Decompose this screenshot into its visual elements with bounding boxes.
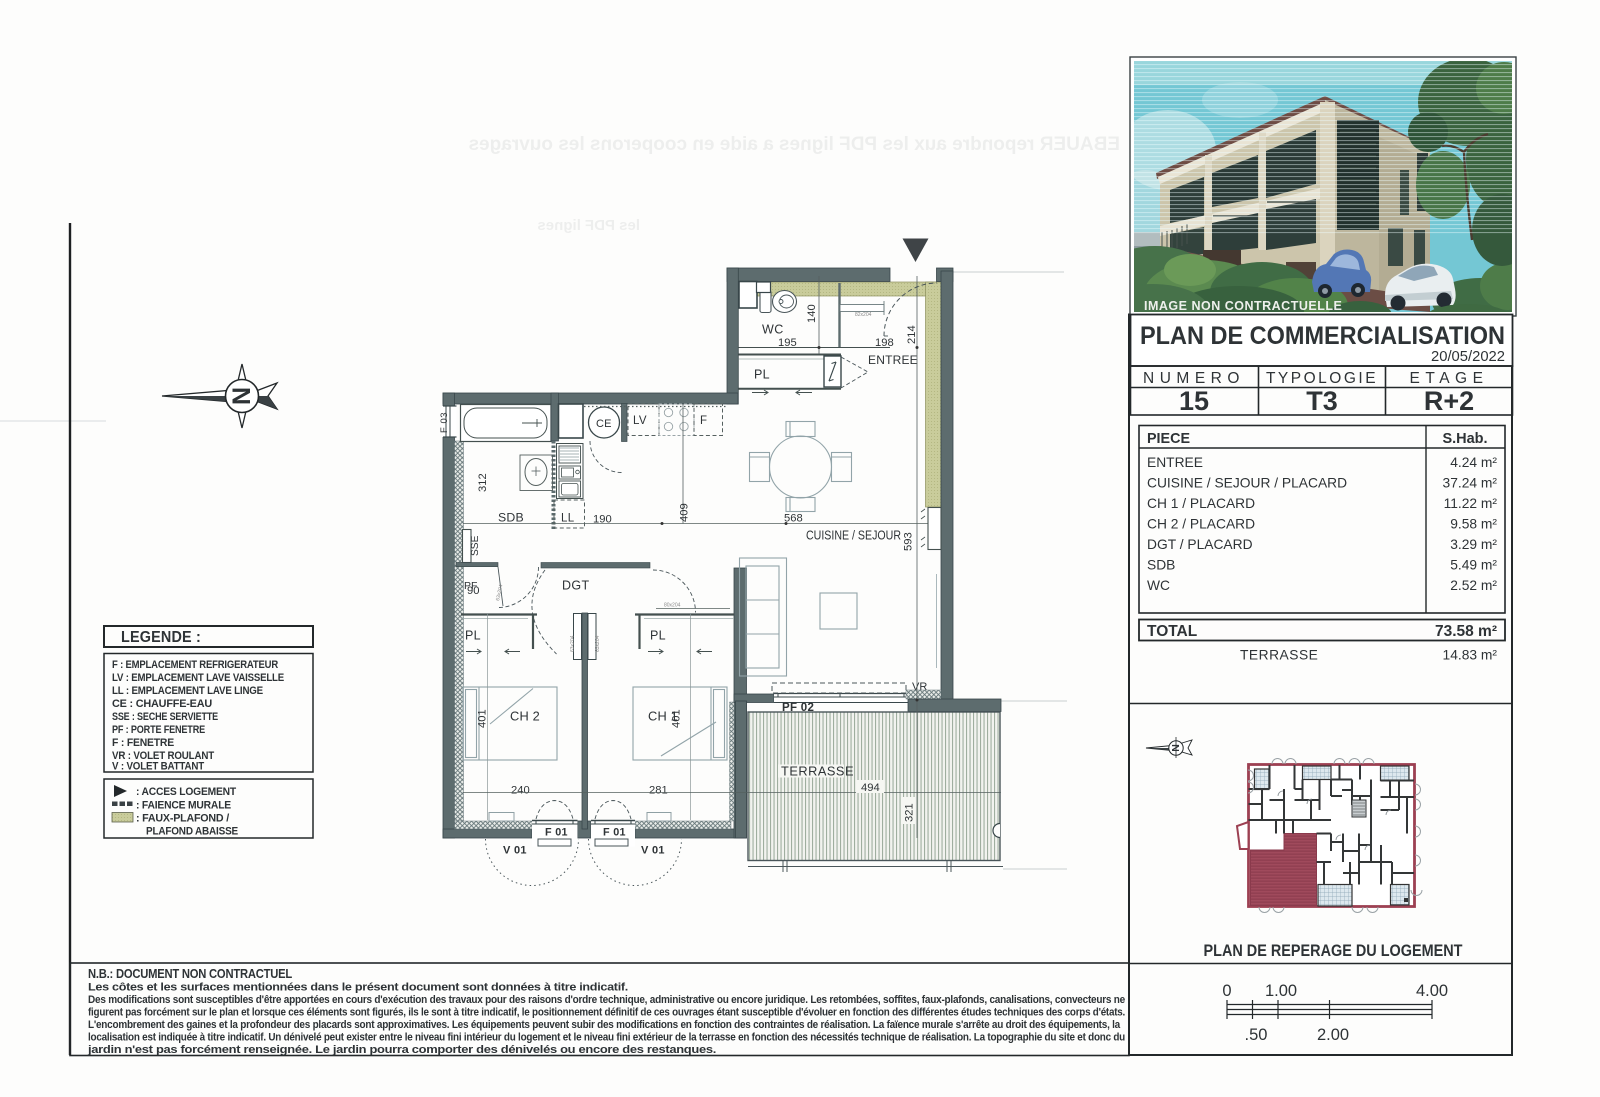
- svg-text:63x204: 63x204: [495, 584, 504, 602]
- svg-text:DGT: DGT: [562, 579, 590, 593]
- svg-text:198: 198: [875, 337, 894, 349]
- svg-text:CE : CHAUFFE-EAU: CE : CHAUFFE-EAU: [112, 698, 212, 710]
- svg-text:63x204: 63x204: [595, 635, 601, 652]
- svg-text:F 03: F 03: [439, 412, 450, 433]
- svg-text:T3: T3: [1306, 386, 1338, 416]
- svg-text:V : VOLET BATTANT: V : VOLET BATTANT: [112, 761, 205, 773]
- svg-text:11.22 m²: 11.22 m²: [1444, 496, 1498, 511]
- svg-text:20/05/2022: 20/05/2022: [1431, 349, 1505, 365]
- svg-text:IMAGE NON CONTRACTUELLE: IMAGE NON CONTRACTUELLE: [1144, 299, 1342, 313]
- svg-text:CH 2 / PLACARD: CH 2 / PLACARD: [1147, 517, 1255, 532]
- svg-text:LL : EMPLACEMENT LAVE LINGE: LL : EMPLACEMENT LAVE LINGE: [112, 685, 263, 697]
- svg-text:401: 401: [477, 709, 489, 728]
- svg-text:CH 1 / PLACARD: CH 1 / PLACARD: [1147, 496, 1255, 511]
- svg-text:5.49 m²: 5.49 m²: [1450, 558, 1497, 573]
- svg-text:jardin n'est pas forcément ren: jardin n'est pas forcément renseignée. L…: [87, 1044, 717, 1056]
- svg-text:ENTREE: ENTREE: [868, 353, 918, 367]
- svg-text:PLAFOND ABAISSE: PLAFOND ABAISSE: [146, 826, 238, 838]
- svg-text:9.58 m²: 9.58 m²: [1450, 517, 1497, 532]
- svg-text:: FAIENCE MURALE: : FAIENCE MURALE: [136, 800, 231, 812]
- svg-text:CUISINE / SEJOUR: CUISINE / SEJOUR: [806, 528, 901, 543]
- svg-text:37.24 m²: 37.24 m²: [1443, 476, 1498, 491]
- svg-text:CUISINE / SEJOUR / PLACARD: CUISINE / SEJOUR / PLACARD: [1147, 476, 1347, 491]
- svg-text:2.00: 2.00: [1317, 1026, 1349, 1044]
- svg-text:F : FENETRE: F : FENETRE: [112, 737, 174, 749]
- svg-text:SDB: SDB: [1147, 558, 1175, 573]
- svg-text:4.00: 4.00: [1416, 982, 1448, 1000]
- svg-text:TERRASSE: TERRASSE: [1240, 648, 1318, 663]
- svg-text:PL: PL: [465, 629, 481, 643]
- svg-text:4.24 m²: 4.24 m²: [1450, 455, 1497, 470]
- svg-text:LV : EMPLACEMENT LAVE VAISSELL: LV : EMPLACEMENT LAVE VAISSELLE: [112, 672, 284, 684]
- svg-text:ENTREE: ENTREE: [1147, 455, 1203, 470]
- svg-text:PLAN DE REPERAGE DU LOGEMENT: PLAN DE REPERAGE DU LOGEMENT: [1204, 942, 1463, 960]
- svg-text:312: 312: [477, 473, 489, 492]
- svg-text:214: 214: [906, 325, 918, 344]
- svg-text:F : EMPLACEMENT REFRIGERATEUR: F : EMPLACEMENT REFRIGERATEUR: [112, 659, 278, 671]
- svg-text:LEGENDE :: LEGENDE :: [121, 629, 201, 646]
- svg-text:PF: PF: [464, 580, 477, 592]
- svg-text:PIECE: PIECE: [1147, 430, 1190, 447]
- svg-text:.50: .50: [1245, 1026, 1268, 1044]
- svg-text:PF : PORTE FENETRE: PF : PORTE FENETRE: [112, 724, 205, 736]
- svg-text:568: 568: [784, 513, 803, 525]
- svg-text:N: N: [1170, 744, 1182, 752]
- svg-text:SDB: SDB: [498, 511, 524, 525]
- svg-text:: FAUX-PLAFOND /: : FAUX-PLAFOND /: [136, 813, 229, 825]
- svg-text:TYPOLOGIE: TYPOLOGIE: [1266, 370, 1378, 387]
- svg-text:les PDF lignes: les PDF lignes: [537, 217, 640, 234]
- svg-text:F 01: F 01: [603, 827, 626, 839]
- svg-text:LV: LV: [633, 415, 647, 427]
- svg-text:195: 195: [778, 337, 797, 349]
- svg-text:140: 140: [806, 304, 818, 323]
- svg-text:N: N: [228, 387, 256, 405]
- svg-text:V 01: V 01: [503, 845, 527, 857]
- svg-text:CE: CE: [596, 418, 612, 430]
- svg-text:SSE : SECHE SERVIETTE: SSE : SECHE SERVIETTE: [112, 711, 218, 723]
- svg-text:LL: LL: [561, 513, 575, 525]
- svg-text:409: 409: [679, 503, 691, 522]
- svg-text:PL: PL: [650, 629, 666, 643]
- svg-text:DGT / PLACARD: DGT / PLACARD: [1147, 537, 1253, 552]
- svg-text:73.58 m²: 73.58 m²: [1435, 623, 1497, 640]
- svg-text:WC: WC: [762, 323, 784, 337]
- svg-text:TERRASSE: TERRASSE: [781, 764, 854, 779]
- svg-text:281: 281: [649, 785, 668, 797]
- svg-text:NUMERO: NUMERO: [1143, 370, 1245, 387]
- svg-text:R+2: R+2: [1424, 386, 1474, 416]
- svg-text:15: 15: [1179, 386, 1209, 416]
- svg-text:494: 494: [861, 782, 880, 794]
- svg-text:CH 2: CH 2: [510, 709, 540, 724]
- svg-text:SSE: SSE: [470, 535, 481, 556]
- svg-text:N.B.: DOCUMENT NON CONTRACTUEL: N.B.: DOCUMENT NON CONTRACTUEL: [88, 967, 292, 981]
- svg-text:190: 190: [593, 514, 612, 526]
- svg-text:401: 401: [671, 709, 683, 728]
- svg-text:593: 593: [903, 532, 915, 551]
- svg-text:L'encombrement des gaines et l: L'encombrement des gaines et la profonde…: [88, 1019, 1120, 1031]
- svg-text:3.29 m²: 3.29 m²: [1450, 537, 1497, 552]
- svg-text:ETAGE: ETAGE: [1410, 370, 1489, 387]
- svg-text:PL: PL: [754, 368, 770, 382]
- svg-text:Des modifications sont suscept: Des modifications sont susceptibles d'êt…: [88, 994, 1125, 1006]
- svg-text:EBAUER repondre aux les PDF li: EBAUER repondre aux les PDF lignes a aid…: [469, 134, 1120, 155]
- svg-text:V 01: V 01: [641, 845, 665, 857]
- svg-text:localisation est indiquée à ti: localisation est indiquée à titre indica…: [88, 1032, 1125, 1044]
- svg-text:Les côtes et les surfaces ment: Les côtes et les surfaces mentionnées da…: [88, 982, 628, 994]
- svg-text:240: 240: [511, 785, 530, 797]
- svg-text:PLAN DE COMMERCIALISATION: PLAN DE COMMERCIALISATION: [1140, 322, 1505, 350]
- svg-text:WC: WC: [1147, 578, 1170, 593]
- svg-text:S.Hab.: S.Hab.: [1442, 431, 1487, 447]
- svg-text:F 01: F 01: [545, 827, 568, 839]
- svg-text:TOTAL: TOTAL: [1147, 623, 1197, 640]
- svg-text:2.52 m²: 2.52 m²: [1450, 578, 1497, 593]
- svg-text:63x204: 63x204: [570, 635, 576, 652]
- svg-text:1.00: 1.00: [1265, 982, 1297, 1000]
- svg-text:321: 321: [904, 803, 916, 822]
- svg-text:F: F: [700, 415, 707, 427]
- svg-text:: ACCES LOGEMENT: : ACCES LOGEMENT: [136, 786, 237, 798]
- svg-text:14.83 m²: 14.83 m²: [1443, 648, 1498, 663]
- svg-text:0: 0: [1222, 982, 1231, 1000]
- svg-text:82x204: 82x204: [855, 312, 872, 318]
- svg-text:80x204: 80x204: [664, 603, 681, 609]
- svg-text:figurent pas forcément sur le: figurent pas forcément sur le plan et lo…: [88, 1007, 1125, 1019]
